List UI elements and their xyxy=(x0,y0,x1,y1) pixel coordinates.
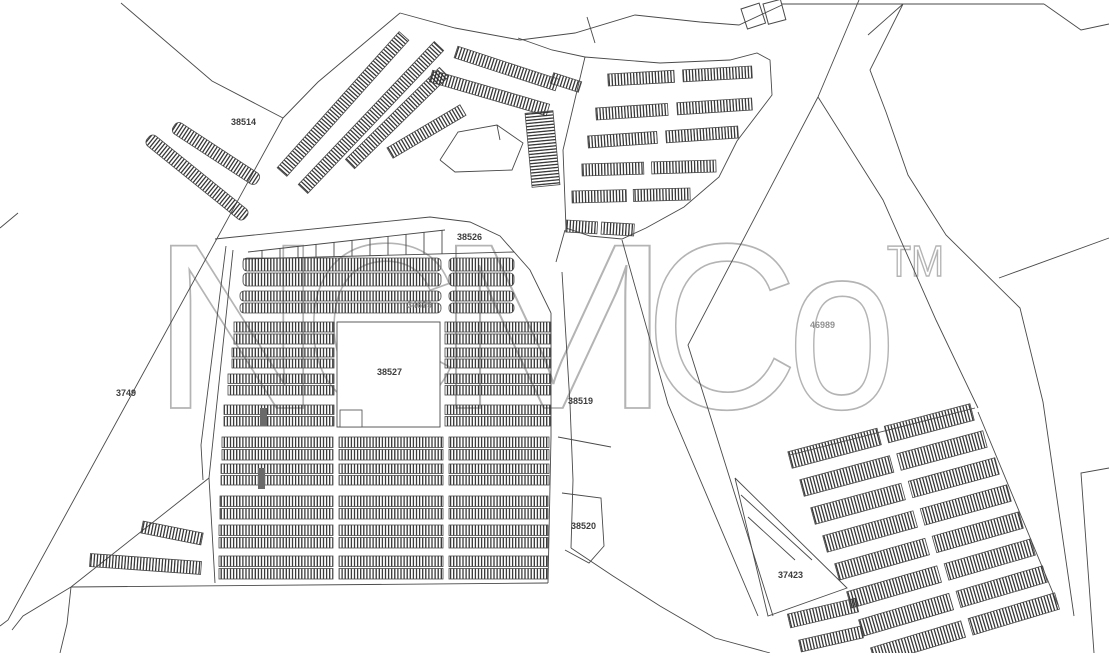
svg-text:46989: 46989 xyxy=(810,320,835,330)
svg-text:3749: 3749 xyxy=(116,388,136,398)
svg-text:o: o xyxy=(787,195,896,459)
svg-text:37423: 37423 xyxy=(778,570,803,580)
svg-text:TM: TM xyxy=(887,237,944,286)
svg-text:38519: 38519 xyxy=(568,396,593,406)
svg-text:38526: 38526 xyxy=(457,232,482,242)
svg-text:C: C xyxy=(645,195,799,459)
svg-text:34679: 34679 xyxy=(407,300,432,310)
svg-text:38520: 38520 xyxy=(571,521,596,531)
svg-text:38514: 38514 xyxy=(231,117,256,127)
svg-text:38527: 38527 xyxy=(377,367,402,377)
